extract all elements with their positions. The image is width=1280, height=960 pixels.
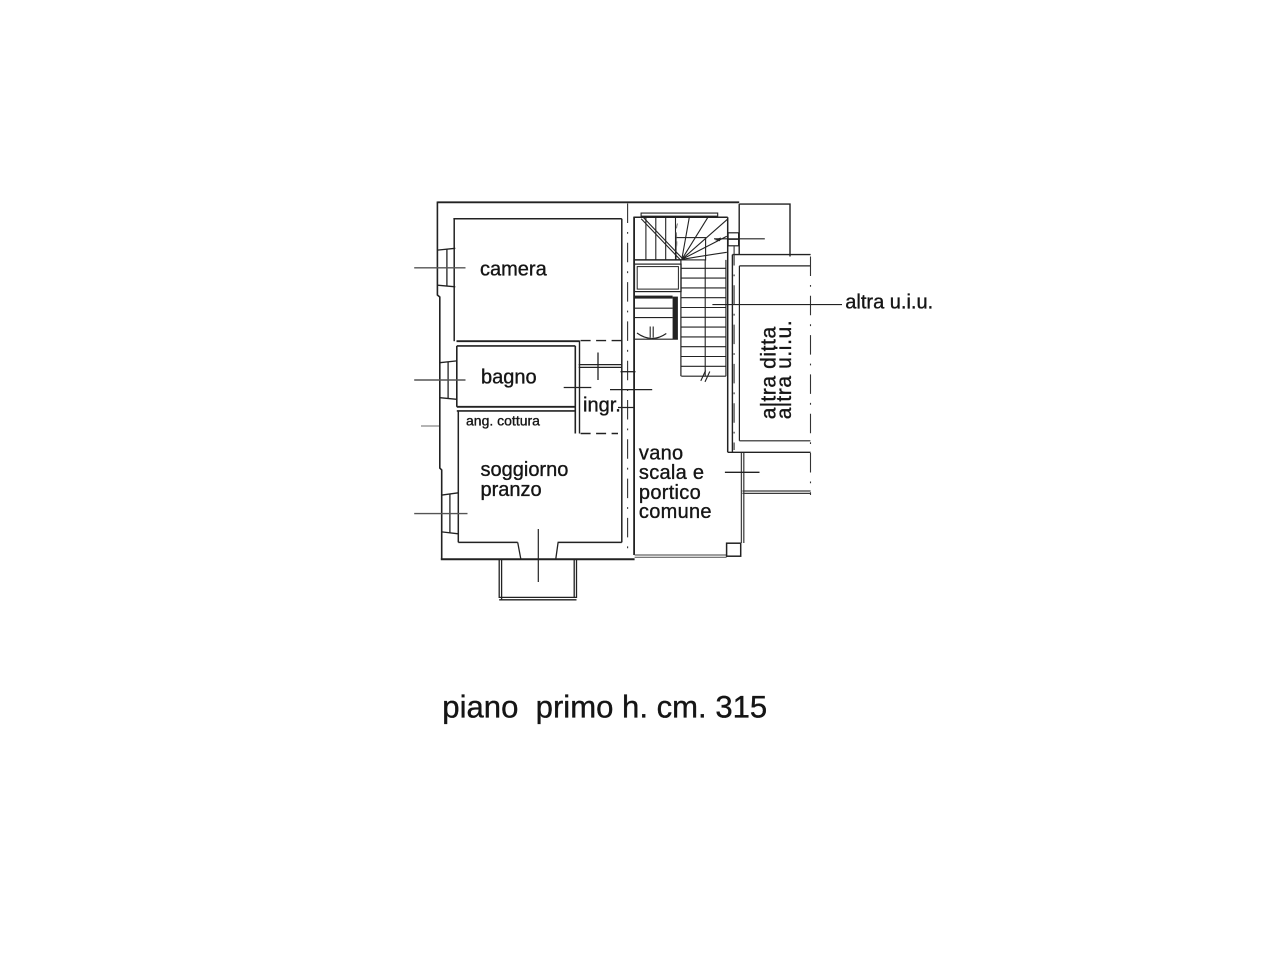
svg-text:pranzo: pranzo [481, 479, 542, 501]
svg-text:altra u.i.u.: altra u.i.u. [773, 320, 796, 419]
svg-text:ang. cottura: ang. cottura [466, 412, 540, 428]
svg-text:ingr.: ingr. [583, 394, 621, 416]
svg-text:piano primo h. cm. 315: piano primo h. cm. 315 [442, 690, 767, 725]
svg-text:altra u.i.u.: altra u.i.u. [845, 292, 933, 314]
svg-text:bagno: bagno [481, 367, 537, 389]
svg-text:camera: camera [480, 258, 548, 280]
svg-text:comune: comune [639, 501, 712, 523]
svg-text:soggiorno: soggiorno [481, 459, 569, 481]
